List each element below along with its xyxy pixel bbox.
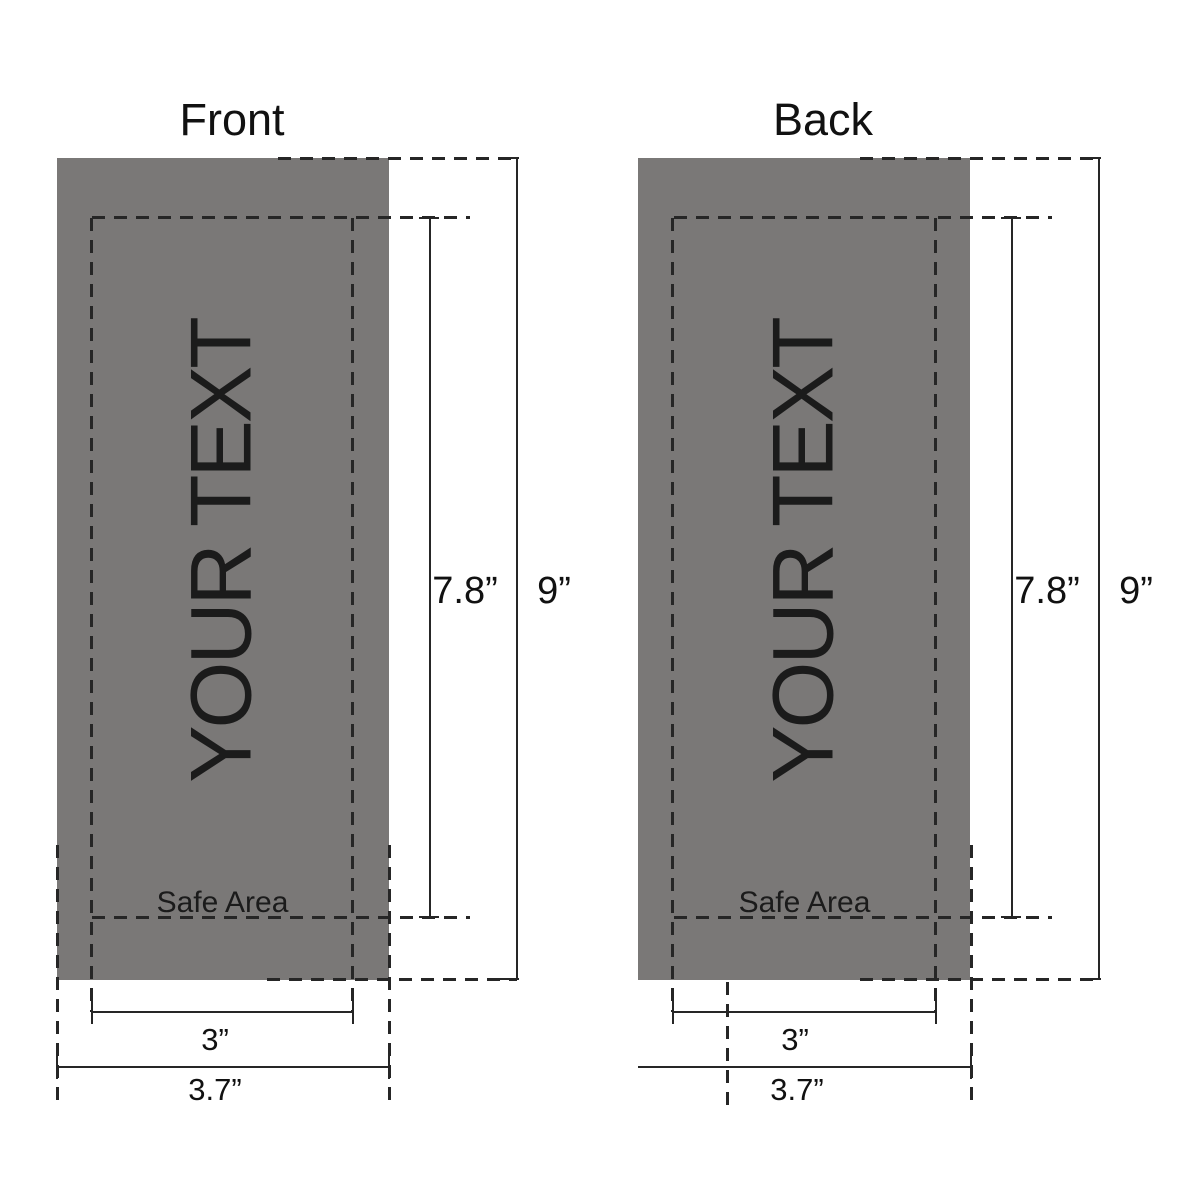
front-tick-safe-width-left xyxy=(91,1000,93,1024)
back-safe-area-top-line xyxy=(674,216,1052,219)
front-tick-safe-width-right xyxy=(352,1000,354,1024)
front-tick-total-height-top xyxy=(499,157,519,159)
front-label-total-height: 9” xyxy=(520,570,588,613)
back-label-total-height: 9” xyxy=(1102,570,1170,613)
back-bleed-top-line xyxy=(860,157,1100,160)
front-tick-total-width-right xyxy=(388,1055,390,1079)
back-placeholder-text: YOUR TEXT xyxy=(755,319,854,783)
back-label-safe-width: 3” xyxy=(730,1022,860,1058)
back-tick-total-height-bottom xyxy=(1081,978,1101,980)
back-tick-safe-height-top xyxy=(1001,217,1021,219)
front-label-safe-width: 3” xyxy=(150,1022,280,1058)
back-tick-total-width-right xyxy=(970,1055,972,1079)
front-dimension-line-total-width xyxy=(57,1066,390,1068)
back-extension-line-left xyxy=(726,982,729,1105)
back-safe-area-label: Safe Area xyxy=(674,886,935,920)
front-label-safe-height: 7.8” xyxy=(430,570,500,613)
back-dimension-line-safe-height xyxy=(1011,218,1013,918)
back-dimension-line-total-width xyxy=(638,1066,972,1068)
print-template-diagram: Front YOUR TEXT 7.8” 9” 3” 3.7” Safe Are… xyxy=(0,0,1200,1200)
front-dimension-line-safe-height xyxy=(429,218,431,918)
front-safe-area-top-line xyxy=(92,216,470,219)
front-dimension-line-safe-width xyxy=(92,1011,353,1013)
back-dimension-line-total-height xyxy=(1098,158,1100,980)
front-label-total-width: 3.7” xyxy=(150,1072,280,1108)
back-dimension-line-safe-width xyxy=(673,1011,937,1013)
front-tick-total-height-bottom xyxy=(499,978,519,980)
front-placeholder-text: YOUR TEXT xyxy=(173,319,272,783)
front-tick-safe-height-top xyxy=(419,217,439,219)
back-label-safe-height: 7.8” xyxy=(1012,570,1082,613)
back-bleed-bottom-line xyxy=(860,978,1100,981)
front-bleed-top-line xyxy=(278,157,518,160)
back-tick-safe-width-left xyxy=(672,1000,674,1024)
back-panel-title: Back xyxy=(673,94,973,146)
back-tick-safe-width-right xyxy=(935,1000,937,1024)
front-bleed-bottom-line xyxy=(267,978,517,981)
front-tick-safe-height-bottom xyxy=(419,916,439,918)
back-tick-total-height-top xyxy=(1081,157,1101,159)
back-tick-safe-height-bottom xyxy=(1001,916,1021,918)
front-safe-area-label: Safe Area xyxy=(92,886,353,920)
front-dimension-line-total-height xyxy=(516,158,518,980)
back-label-total-width: 3.7” xyxy=(732,1072,862,1108)
front-panel-title: Front xyxy=(82,94,382,146)
front-tick-total-width-left xyxy=(56,1055,58,1079)
